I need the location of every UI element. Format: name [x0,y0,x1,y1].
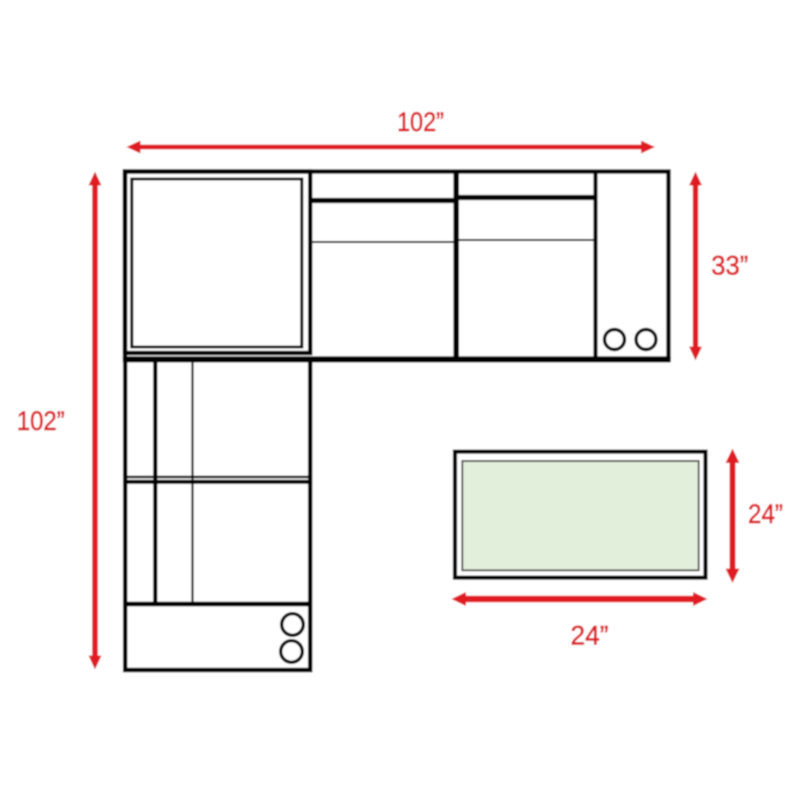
svg-text:33”: 33” [711,251,748,281]
svg-text:102”: 102” [397,107,444,137]
svg-text:102”: 102” [17,406,65,436]
svg-text:24”: 24” [571,621,609,651]
svg-text:24”: 24” [748,499,783,529]
